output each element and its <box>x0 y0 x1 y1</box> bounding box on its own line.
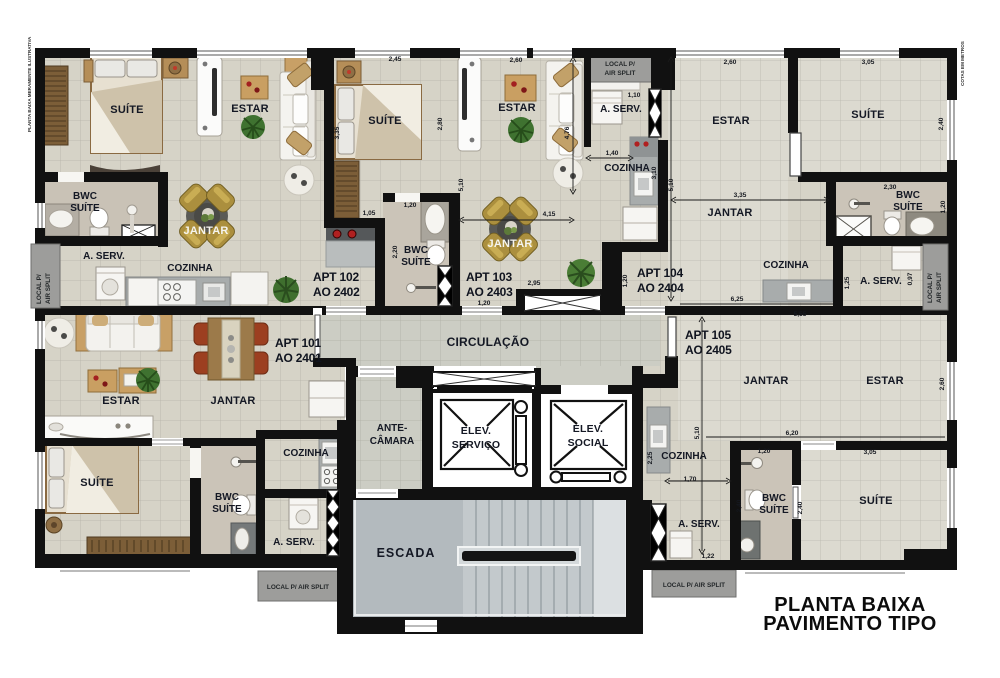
svg-text:5,10: 5,10 <box>458 178 465 191</box>
svg-text:3,10: 3,10 <box>651 166 658 179</box>
svg-text:SUÍTE: SUÍTE <box>851 108 884 121</box>
svg-text:2,40: 2,40 <box>797 501 804 514</box>
svg-text:COZINHA: COZINHA <box>763 260 809 271</box>
svg-text:1,70: 1,70 <box>684 476 697 483</box>
svg-text:PLANTA BAIXA MERAMENTE ILUSTRA: PLANTA BAIXA MERAMENTE ILUSTRATIVA <box>27 36 32 132</box>
svg-text:JANTAR: JANTAR <box>211 395 256 407</box>
svg-text:SUÍTE: SUÍTE <box>80 476 113 489</box>
svg-text:5,10: 5,10 <box>694 426 701 439</box>
svg-text:SOCIAL: SOCIAL <box>568 437 609 449</box>
svg-text:4,76: 4,76 <box>564 126 571 139</box>
svg-text:2,25: 2,25 <box>647 451 654 464</box>
svg-text:A. SERV.: A. SERV. <box>860 276 902 287</box>
svg-text:1,20: 1,20 <box>622 274 629 287</box>
svg-text:SUÍTE: SUÍTE <box>368 114 401 127</box>
svg-text:AO 2405: AO 2405 <box>685 343 732 357</box>
svg-text:1,10: 1,10 <box>628 92 641 99</box>
svg-text:3,35: 3,35 <box>334 126 341 139</box>
svg-text:APT 103: APT 103 <box>466 270 512 284</box>
svg-text:ESTAR: ESTAR <box>712 115 749 127</box>
svg-text:JANTAR: JANTAR <box>488 238 533 250</box>
svg-text:COZINHA: COZINHA <box>167 263 213 274</box>
svg-text:2,30: 2,30 <box>884 184 897 191</box>
svg-text:1,22: 1,22 <box>702 553 715 560</box>
svg-text:0,97: 0,97 <box>907 272 914 285</box>
svg-text:SERVIÇO: SERVIÇO <box>452 439 500 451</box>
svg-text:2,40: 2,40 <box>736 499 743 512</box>
svg-text:SUÍTE: SUÍTE <box>212 502 242 515</box>
svg-text:2,60: 2,60 <box>510 57 523 64</box>
svg-text:COZINHA: COZINHA <box>283 448 329 459</box>
svg-text:ESTAR: ESTAR <box>498 102 535 114</box>
svg-text:2,60: 2,60 <box>724 59 737 66</box>
svg-text:BWC: BWC <box>73 191 97 202</box>
svg-text:AIR SPLIT: AIR SPLIT <box>45 273 52 304</box>
svg-text:ELEV.: ELEV. <box>461 425 491 437</box>
svg-text:3,05: 3,05 <box>862 59 875 66</box>
svg-text:SUÍTE: SUÍTE <box>893 200 923 213</box>
svg-text:AO 2404: AO 2404 <box>637 281 684 295</box>
svg-text:JANTAR: JANTAR <box>708 207 753 219</box>
svg-text:1,40: 1,40 <box>606 150 619 157</box>
svg-text:SUÍTE: SUÍTE <box>110 103 143 116</box>
svg-text:1,20: 1,20 <box>940 200 947 213</box>
svg-text:LOCAL P/: LOCAL P/ <box>605 61 635 68</box>
svg-text:5,10: 5,10 <box>668 178 675 191</box>
svg-text:4,15: 4,15 <box>543 211 556 218</box>
svg-text:3,05: 3,05 <box>864 449 877 456</box>
svg-text:2,60: 2,60 <box>939 377 946 390</box>
svg-text:LOCAL P/: LOCAL P/ <box>927 273 934 303</box>
svg-text:JANTAR: JANTAR <box>184 225 229 237</box>
svg-text:CIRCULAÇÃO: CIRCULAÇÃO <box>447 334 530 349</box>
svg-text:ESTAR: ESTAR <box>866 375 903 387</box>
svg-text:AO 2402: AO 2402 <box>313 285 360 299</box>
svg-text:2,95: 2,95 <box>528 280 541 287</box>
svg-text:1,20: 1,20 <box>404 202 417 209</box>
svg-text:AIR SPLIT: AIR SPLIT <box>605 70 636 77</box>
svg-text:1,20: 1,20 <box>478 300 491 307</box>
svg-text:5,55: 5,55 <box>794 311 807 318</box>
svg-text:SUÍTE: SUÍTE <box>70 201 100 214</box>
svg-text:LOCAL P/: LOCAL P/ <box>36 274 43 304</box>
svg-text:CÂMARA: CÂMARA <box>370 434 414 447</box>
svg-text:AIR SPLIT: AIR SPLIT <box>936 272 943 303</box>
svg-text:6,20: 6,20 <box>786 430 799 437</box>
svg-text:APT 104: APT 104 <box>637 266 683 280</box>
svg-text:APT 102: APT 102 <box>313 270 359 284</box>
svg-text:A. SERV.: A. SERV. <box>273 537 315 548</box>
svg-text:AO 2401: AO 2401 <box>275 351 322 365</box>
svg-text:BWC: BWC <box>762 493 786 504</box>
svg-text:ELEV.: ELEV. <box>573 423 603 435</box>
svg-text:3,35: 3,35 <box>734 192 747 199</box>
svg-text:COZINHA: COZINHA <box>661 451 707 462</box>
svg-text:A. SERV.: A. SERV. <box>678 519 720 530</box>
svg-text:2,80: 2,80 <box>437 117 444 130</box>
svg-text:1,25: 1,25 <box>844 276 851 289</box>
svg-text:2,40: 2,40 <box>938 117 945 130</box>
svg-text:ESCADA: ESCADA <box>377 546 436 560</box>
svg-text:SUÍTE: SUÍTE <box>759 503 789 516</box>
svg-text:A. SERV.: A. SERV. <box>600 104 642 115</box>
svg-text:6,25: 6,25 <box>731 296 744 303</box>
svg-text:JANTAR: JANTAR <box>744 375 789 387</box>
svg-text:2,20: 2,20 <box>392 245 399 258</box>
svg-text:BWC: BWC <box>896 190 920 201</box>
svg-text:ANTE-: ANTE- <box>377 423 408 434</box>
svg-text:BWC: BWC <box>215 492 239 503</box>
svg-text:LOCAL P/ AIR SPLIT: LOCAL P/ AIR SPLIT <box>267 584 329 591</box>
svg-text:1,20: 1,20 <box>758 448 771 455</box>
svg-text:ESTAR: ESTAR <box>102 395 139 407</box>
svg-text:ESTAR: ESTAR <box>231 103 268 115</box>
svg-text:COZINHA: COZINHA <box>604 163 650 174</box>
svg-text:SUÍTE: SUÍTE <box>401 255 431 268</box>
svg-text:APT 105: APT 105 <box>685 328 731 342</box>
svg-text:SUÍTE: SUÍTE <box>859 494 892 507</box>
svg-text:2,45: 2,45 <box>389 56 402 63</box>
svg-text:PAVIMENTO TIPO: PAVIMENTO TIPO <box>763 613 936 635</box>
svg-text:A. SERV.: A. SERV. <box>83 251 125 262</box>
svg-text:LOCAL P/ AIR SPLIT: LOCAL P/ AIR SPLIT <box>663 582 725 589</box>
svg-text:1,05: 1,05 <box>363 210 376 217</box>
svg-text:COTAS EM METROS: COTAS EM METROS <box>960 41 965 86</box>
svg-text:APT 101: APT 101 <box>275 336 321 350</box>
svg-text:AO 2403: AO 2403 <box>466 285 513 299</box>
svg-text:BWC: BWC <box>404 245 428 256</box>
